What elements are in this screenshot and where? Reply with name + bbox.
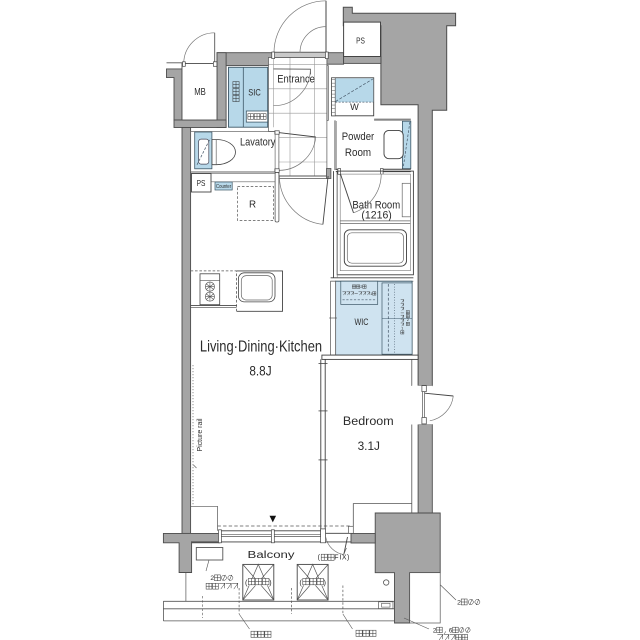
svg-text:(1216): (1216) <box>361 209 391 221</box>
svg-text:6: 6 <box>449 627 453 634</box>
svg-text:Counter: Counter <box>216 184 231 190</box>
svg-text:Picture rail: Picture rail <box>197 418 204 452</box>
svg-text:Bedroom: Bedroom <box>343 414 394 428</box>
svg-text:PS: PS <box>356 37 365 46</box>
svg-text:1: 1 <box>370 292 372 296</box>
svg-text:1: 1 <box>401 326 403 330</box>
svg-text:): ) <box>347 555 349 562</box>
svg-text:2: 2 <box>433 627 437 634</box>
svg-text:Room: Room <box>345 147 371 159</box>
svg-text:W: W <box>350 102 359 112</box>
svg-text:Lavatory: Lavatory <box>240 137 276 149</box>
svg-text:3.1J: 3.1J <box>358 439 380 453</box>
svg-text:2: 2 <box>457 599 461 606</box>
svg-text:8.8J: 8.8J <box>249 364 271 379</box>
svg-text:Balcony: Balcony <box>248 550 295 561</box>
svg-text:Living·Dining·Kitchen: Living·Dining·Kitchen <box>200 338 322 355</box>
svg-text:2: 2 <box>360 284 362 289</box>
svg-text:F: F <box>334 555 338 562</box>
svg-text:R: R <box>249 200 256 211</box>
svg-text:Powder: Powder <box>342 131 375 143</box>
svg-text:MB: MB <box>194 87 206 98</box>
svg-text:2: 2 <box>407 318 409 322</box>
svg-text:SIC: SIC <box>248 88 261 99</box>
svg-text:WIC: WIC <box>355 317 370 327</box>
svg-text:2: 2 <box>210 575 214 582</box>
svg-text:PS: PS <box>197 179 206 188</box>
